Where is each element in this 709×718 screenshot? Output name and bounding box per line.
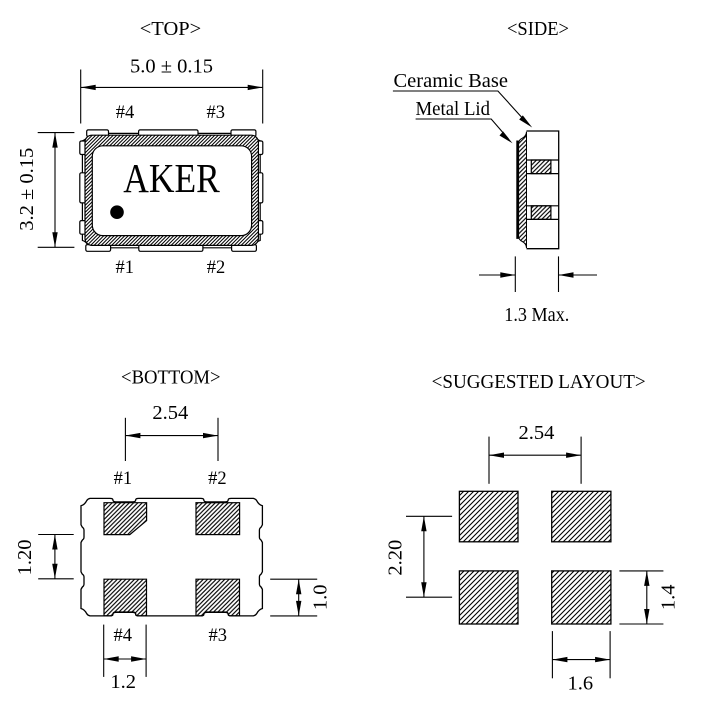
svg-text:3.2 ± 0.15: 3.2 ± 0.15 — [16, 148, 38, 231]
svg-text:2.54: 2.54 — [152, 402, 188, 424]
svg-text:<TOP>: <TOP> — [140, 18, 201, 40]
svg-text:#1: #1 — [114, 469, 133, 489]
svg-text:#2: #2 — [208, 469, 227, 489]
svg-text:2.54: 2.54 — [518, 422, 554, 444]
svg-text:#2: #2 — [207, 258, 226, 278]
svg-text:<SUGGESTED LAYOUT>: <SUGGESTED LAYOUT> — [432, 371, 646, 393]
svg-text:#3: #3 — [208, 626, 227, 646]
svg-text:#4: #4 — [116, 103, 135, 123]
svg-text:Metal Lid: Metal Lid — [416, 98, 491, 120]
svg-text:1.6: 1.6 — [567, 672, 593, 694]
svg-text:#4: #4 — [114, 626, 133, 646]
svg-text:1.3 Max.: 1.3 Max. — [504, 304, 569, 326]
svg-text:Ceramic Base: Ceramic Base — [394, 70, 508, 92]
svg-text:1.20: 1.20 — [14, 539, 36, 575]
svg-text:2.20: 2.20 — [384, 540, 406, 576]
svg-text:1.2: 1.2 — [110, 671, 136, 693]
svg-text:5.0 ± 0.15: 5.0 ± 0.15 — [130, 56, 213, 78]
svg-text:AKER: AKER — [123, 155, 220, 201]
svg-text:#1: #1 — [116, 258, 135, 278]
svg-text:<BOTTOM>: <BOTTOM> — [121, 366, 221, 388]
svg-text:#3: #3 — [206, 103, 225, 123]
svg-text:1.4: 1.4 — [657, 584, 679, 610]
svg-text:<SIDE>: <SIDE> — [507, 18, 569, 40]
svg-text:1.0: 1.0 — [310, 584, 332, 610]
